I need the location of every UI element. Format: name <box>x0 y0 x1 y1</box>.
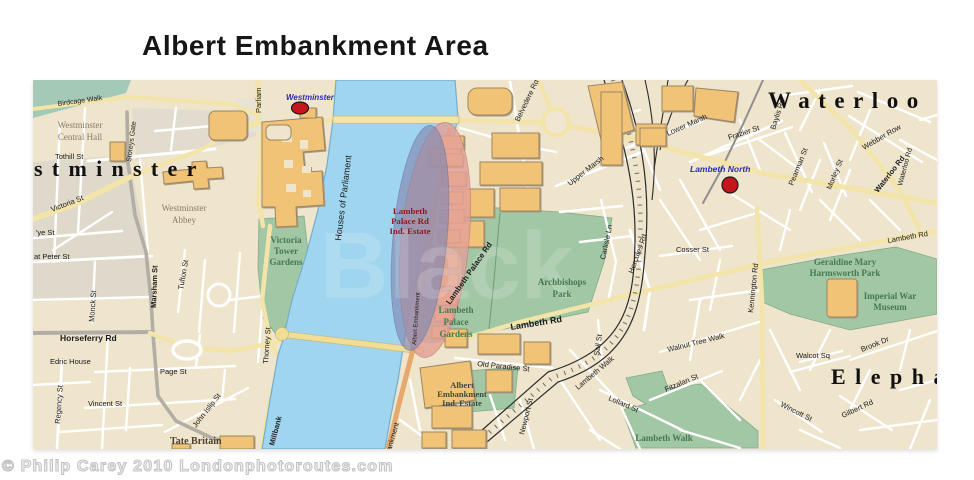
svg-text:Westminster: Westminster <box>286 93 335 102</box>
svg-text:Palace: Palace <box>444 317 469 327</box>
svg-text:Page St: Page St <box>160 367 188 376</box>
svg-text:'ye St: 'ye St <box>36 228 55 237</box>
svg-text:Tower: Tower <box>274 246 298 256</box>
svg-text:Tothill St: Tothill St <box>55 152 84 161</box>
svg-text:Gardens: Gardens <box>439 329 473 339</box>
svg-text:Imperial War: Imperial War <box>864 291 917 301</box>
svg-text:Ind. Estate: Ind. Estate <box>442 398 482 408</box>
svg-text:Westminster: Westminster <box>58 120 103 130</box>
svg-text:Ind. Estate: Ind. Estate <box>389 226 430 236</box>
svg-text:Edric House: Edric House <box>50 357 91 366</box>
svg-text:Cosser St: Cosser St <box>676 245 710 254</box>
svg-text:Lambeth Walk: Lambeth Walk <box>635 433 693 443</box>
svg-text:Elepha: Elepha <box>831 364 937 389</box>
svg-text:Museum: Museum <box>873 302 907 312</box>
svg-text:Geraldine Mary: Geraldine Mary <box>814 257 877 267</box>
svg-text:Marsham St: Marsham St <box>149 265 159 308</box>
svg-text:Central Hall: Central Hall <box>58 132 103 142</box>
svg-text:Vincent St: Vincent St <box>88 399 123 408</box>
svg-text:Walcot Sq: Walcot Sq <box>796 351 830 360</box>
svg-text:Gardens: Gardens <box>269 257 303 267</box>
svg-text:Abbey: Abbey <box>172 215 196 225</box>
svg-text:Parliam: Parliam <box>254 88 263 113</box>
svg-text:Westminster: Westminster <box>162 203 207 213</box>
svg-text:Palace Rd: Palace Rd <box>391 216 429 226</box>
svg-text:Waterloo: Waterloo <box>768 88 927 113</box>
svg-text:Archbishops: Archbishops <box>538 277 587 287</box>
svg-text:Lambeth: Lambeth <box>438 305 473 315</box>
svg-text:Horseferry Rd: Horseferry Rd <box>60 333 117 343</box>
svg-text:Victoria: Victoria <box>270 235 302 245</box>
svg-text:Park: Park <box>553 289 572 299</box>
svg-text:at Peter St: at Peter St <box>34 252 70 261</box>
svg-text:Tate Britain: Tate Britain <box>170 436 222 447</box>
svg-text:Lambeth North: Lambeth North <box>690 164 750 174</box>
svg-text:Harmsworth Park: Harmsworth Park <box>810 268 881 278</box>
svg-text:Lambeth: Lambeth <box>393 206 427 216</box>
